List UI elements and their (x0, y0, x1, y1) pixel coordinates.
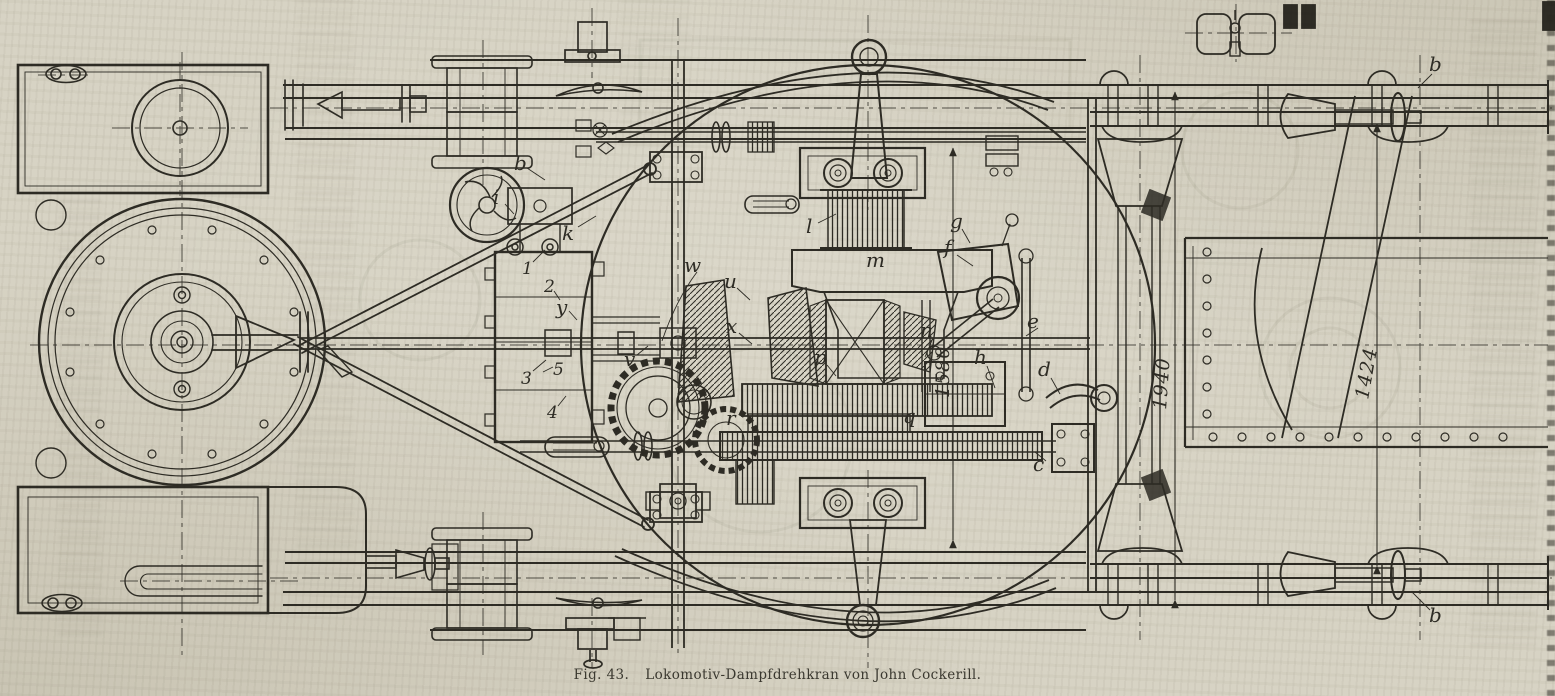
part-label-c: c (1033, 452, 1044, 476)
part-label-m: m (866, 248, 885, 272)
part-label-5: 5 (553, 360, 564, 380)
part-label-x: x (726, 314, 737, 338)
part-label-3: 3 (521, 369, 532, 389)
kingpin-and-stay-rods (212, 163, 656, 530)
part-label-h: h (974, 345, 987, 369)
turntable-roller-ring (36, 199, 325, 485)
part-label-k: k (562, 221, 574, 245)
part-label-r: r (726, 406, 737, 430)
part-label-1: 1 (522, 259, 533, 279)
part-label-i: i (493, 185, 499, 209)
figure-caption: Fig. 43.Lokomotiv-Dampfdrehkran von John… (0, 667, 1555, 683)
dimension-lines (953, 92, 1377, 600)
part-label-l: l (806, 214, 812, 238)
part-label-b-bottom: b (1429, 603, 1442, 627)
part-label-u: u (724, 269, 737, 293)
part-label-b-top: b (1429, 52, 1442, 76)
part-label-e: e (1027, 309, 1039, 333)
part-label-n: n (920, 318, 933, 342)
part-label-y: y (555, 295, 568, 319)
figure-title: Lokomotiv-Dampfdrehkran von John Cockeri… (645, 667, 981, 683)
part-label-d: d (1038, 357, 1051, 381)
part-label-v: v (624, 347, 636, 371)
part-label-4: 4 (546, 403, 558, 423)
dimension-1940: 1940 (1149, 357, 1175, 411)
safety-valve-whistle (1197, 2, 1555, 56)
part-label-2: 2 (543, 277, 555, 297)
part-label-w: w (684, 253, 701, 277)
dimension-1580: 1580 (932, 346, 954, 398)
scanned-book-page: 1580 1940 1424 b i k 1 2 y 3 5 4 v w (0, 0, 1555, 696)
part-label-p: p (814, 345, 827, 369)
part-label-b: b (514, 151, 527, 175)
truck-underframe (1088, 96, 1548, 591)
part-label-g: g (950, 209, 963, 233)
engraving-canvas: 1580 1940 1424 b i k 1 2 y 3 5 4 v w (0, 0, 1555, 696)
part-label-q: q (903, 404, 916, 428)
figure-number: Fig. 43. (574, 667, 630, 683)
